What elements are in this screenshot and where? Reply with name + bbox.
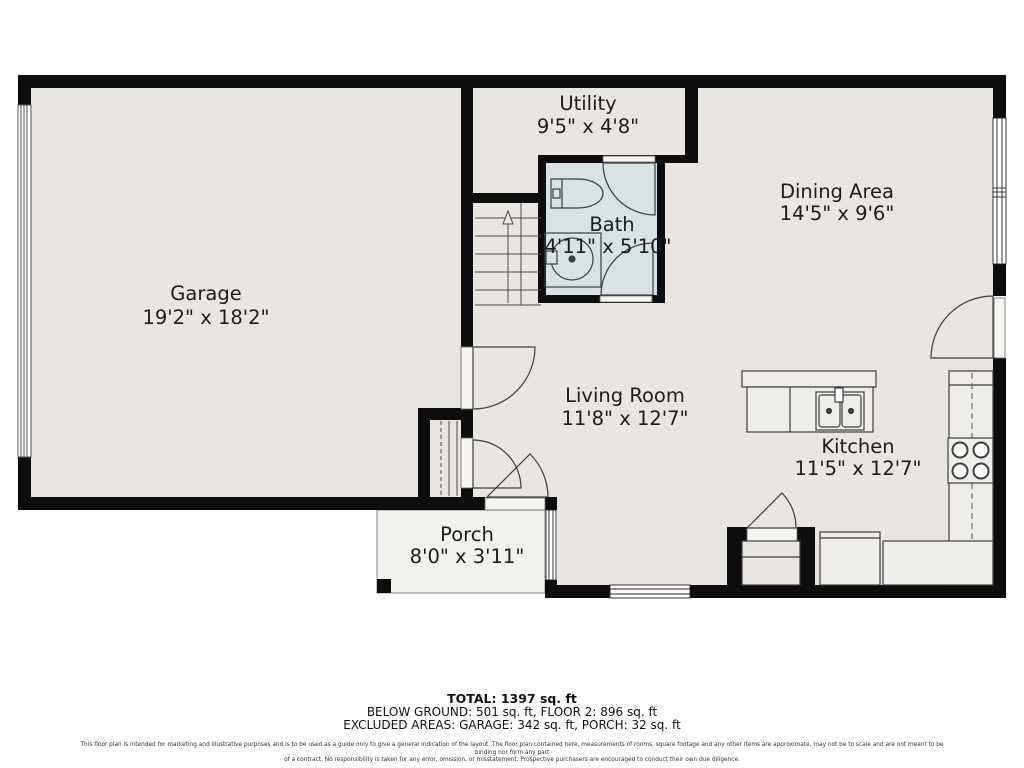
wall-utility-right xyxy=(685,75,698,163)
wall-bath-right xyxy=(657,155,665,303)
dining-door-leaf xyxy=(994,298,1005,358)
floor-plan: Garage 19'2" x 18'2" Utility 9'5" x 4'8"… xyxy=(0,0,1024,640)
dining-name: Dining Area xyxy=(780,180,894,203)
utility-name: Utility xyxy=(559,92,616,115)
wall-right-1 xyxy=(993,75,1006,118)
appliance xyxy=(820,532,880,585)
dining-dims: 14'5" x 9'6" xyxy=(780,202,895,225)
kitchen-dims: 11'5" x 12'7" xyxy=(794,457,921,480)
wall-bottom-1 xyxy=(557,585,610,598)
stove-icon xyxy=(948,438,993,483)
wall-pantry-top-1 xyxy=(727,527,747,541)
disclaimer-line-1: This floor plan is intended for marketin… xyxy=(72,742,952,757)
garage-name: Garage xyxy=(170,282,241,305)
area-summary: TOTAL: 1397 sq. ft BELOW GROUND: 501 sq.… xyxy=(0,692,1024,733)
floor-plan-page: Garage 19'2" x 18'2" Utility 9'5" x 4'8"… xyxy=(0,0,1024,768)
window-living-bottom xyxy=(610,585,690,598)
wall-porchside-lower xyxy=(545,580,557,598)
living-name: Living Room xyxy=(565,384,685,407)
wall-garage-bottom xyxy=(18,497,485,510)
bath-top-door-sill xyxy=(603,156,655,162)
porch-dims: 8'0" x 3'11" xyxy=(410,545,525,568)
wall-right-2 xyxy=(993,264,1006,296)
utility-dims: 9'5" x 4'8" xyxy=(537,115,639,138)
kitchen-island xyxy=(742,371,876,432)
living-dims: 11'8" x 12'7" xyxy=(561,407,688,430)
window-dining xyxy=(993,118,1006,264)
wall-top xyxy=(18,75,1006,88)
wall-garage-right xyxy=(461,75,473,347)
kitchen-name: Kitchen xyxy=(821,435,894,458)
wall-closet-left xyxy=(418,408,430,510)
closet-door-leaf xyxy=(461,438,473,488)
front-door-sill xyxy=(485,498,545,510)
garage-dims: 19'2" x 18'2" xyxy=(142,306,269,329)
porch-post xyxy=(377,579,391,593)
room-label-dining: Dining Area 14'5" x 9'6" xyxy=(780,180,895,225)
bath-name: Bath xyxy=(589,213,634,236)
wall-pantry-top-2 xyxy=(797,527,815,541)
area-breakdown: BELOW GROUND: 501 sq. ft, FLOOR 2: 896 s… xyxy=(0,706,1024,720)
window-porch-side xyxy=(546,510,556,580)
bath-bottom-door-sill xyxy=(600,296,652,302)
wall-porchside-upper xyxy=(545,498,557,510)
garage-door xyxy=(18,105,31,457)
staircase xyxy=(475,203,541,305)
total-area: TOTAL: 1397 sq. ft xyxy=(0,692,1024,706)
garage-entry-door-leaf xyxy=(461,347,473,409)
wall-closet-right-lower xyxy=(461,488,473,510)
room-label-living: Living Room 11'8" x 12'7" xyxy=(561,384,688,430)
pantry-door-sill xyxy=(747,528,797,541)
counter-bottom xyxy=(883,541,993,585)
wall-right-3 xyxy=(993,358,1006,598)
pantry-interior xyxy=(742,541,800,585)
disclaimer: This floor plan is intended for marketin… xyxy=(72,742,952,765)
excluded-areas: EXCLUDED AREAS: GARAGE: 342 sq. ft, PORC… xyxy=(0,719,1024,733)
porch-name: Porch xyxy=(440,523,494,546)
wall-left-upper xyxy=(18,75,31,105)
toilet-icon xyxy=(551,179,603,208)
bath-dims: 4'11" x 5'10" xyxy=(544,235,671,258)
disclaimer-line-2: of a contract. No responsibility is take… xyxy=(72,757,952,765)
wall-stairs-top xyxy=(473,193,543,203)
